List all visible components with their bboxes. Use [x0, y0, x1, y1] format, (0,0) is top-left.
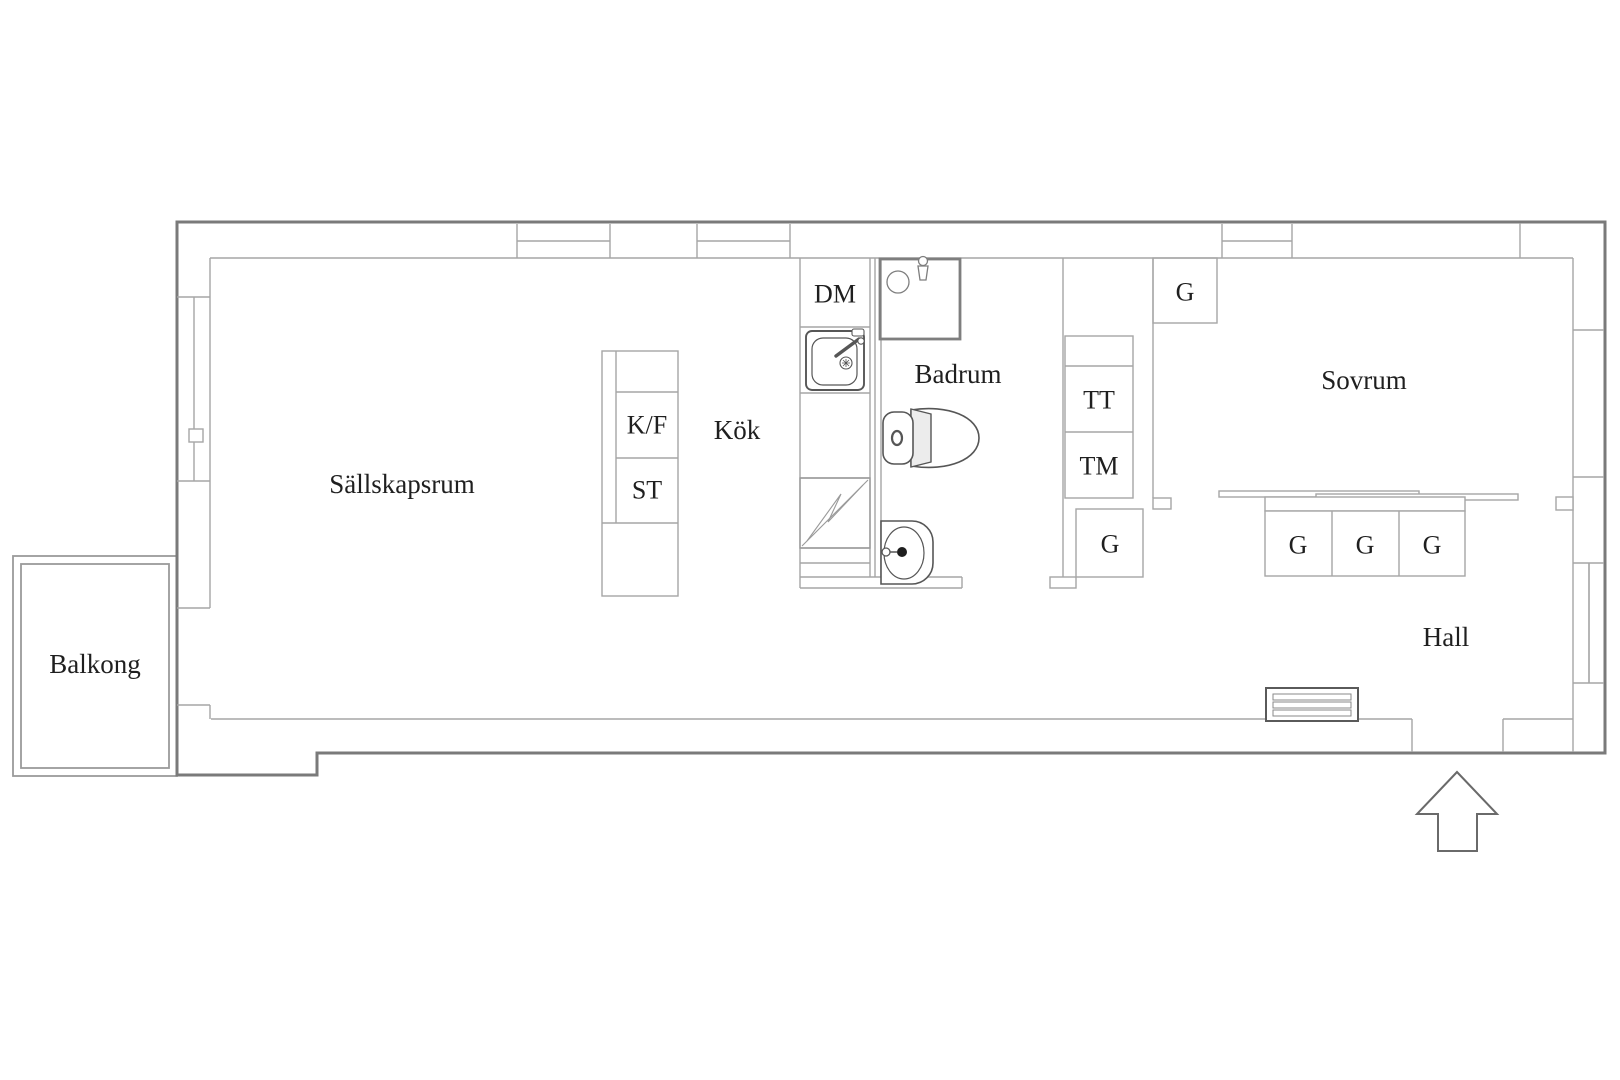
entrance-arrow-icon [1417, 772, 1497, 851]
kitchen-island [602, 351, 678, 596]
room-label-badrum: Badrum [915, 359, 1002, 389]
fixture-label-tumble-dryer: TT [1083, 386, 1115, 415]
fixture-label-fridge-freezer: K/F [627, 411, 667, 440]
washbasin-icon [881, 521, 933, 584]
room-label-sovrum: Sovrum [1321, 365, 1407, 395]
fixture-label-wardrobe-hall: G [1101, 530, 1120, 559]
window-icon-living-2 [697, 224, 790, 258]
fixture-label-dishwasher: DM [814, 280, 856, 309]
fixture-label-tall-cabinet: ST [632, 476, 662, 505]
room-label-balkong: Balkong [49, 649, 141, 679]
fixture-label-wardrobe-closet-left: G [1289, 531, 1308, 560]
room-labels: Sällskapsrum Balkong Kök Badrum Sovrum H… [49, 359, 1469, 679]
room-label-kok: Kök [714, 415, 761, 445]
fixture-label-washing-machine: TM [1080, 452, 1119, 481]
toilet-icon [883, 409, 979, 468]
bedroom-closet-row [1219, 491, 1573, 576]
floor-plan-page: Sällskapsrum Balkong Kök Badrum Sovrum H… [0, 0, 1620, 1080]
fixture-label-wardrobe-bedroom: G [1176, 278, 1195, 307]
vent-grille-icon [1266, 688, 1358, 721]
shower-icon [880, 257, 960, 340]
room-label-sallskapsrum: Sällskapsrum [329, 469, 475, 499]
window-icon-living-1 [517, 224, 610, 258]
fixture-label-wardrobe-closet-middle: G [1356, 531, 1375, 560]
kitchen-sink-icon [806, 329, 864, 390]
fixture-label-wardrobe-closet-right: G [1423, 531, 1442, 560]
room-label-hall: Hall [1423, 622, 1470, 652]
floor-plan: Sällskapsrum Balkong Kök Badrum Sovrum H… [0, 0, 1620, 1080]
window-icon-bedroom [1222, 224, 1292, 258]
stove-icon [800, 478, 870, 548]
window-icon-left-wall [177, 297, 210, 481]
